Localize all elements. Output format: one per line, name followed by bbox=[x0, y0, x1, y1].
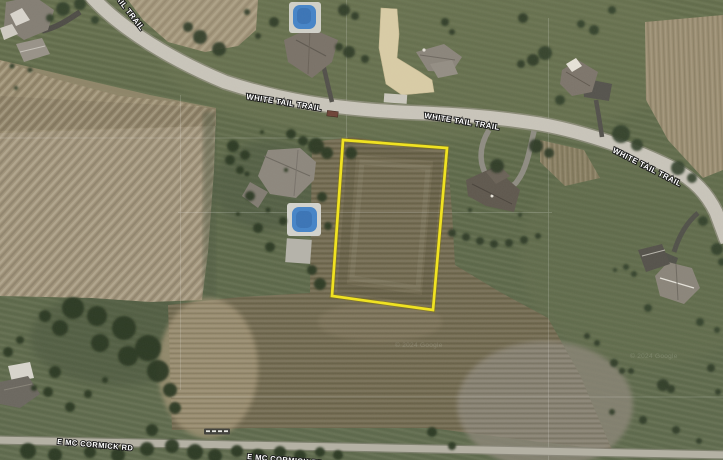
photo-grain-overlay bbox=[0, 0, 723, 460]
aerial-imagery: © 2024 Google © 2024 Google WHITE TAIL T… bbox=[0, 0, 723, 460]
watermark: © 2024 Google bbox=[630, 352, 678, 360]
satellite-map-canvas[interactable]: © 2024 Google © 2024 Google WHITE TAIL T… bbox=[0, 0, 723, 460]
watermark: © 2024 Google bbox=[395, 341, 443, 349]
